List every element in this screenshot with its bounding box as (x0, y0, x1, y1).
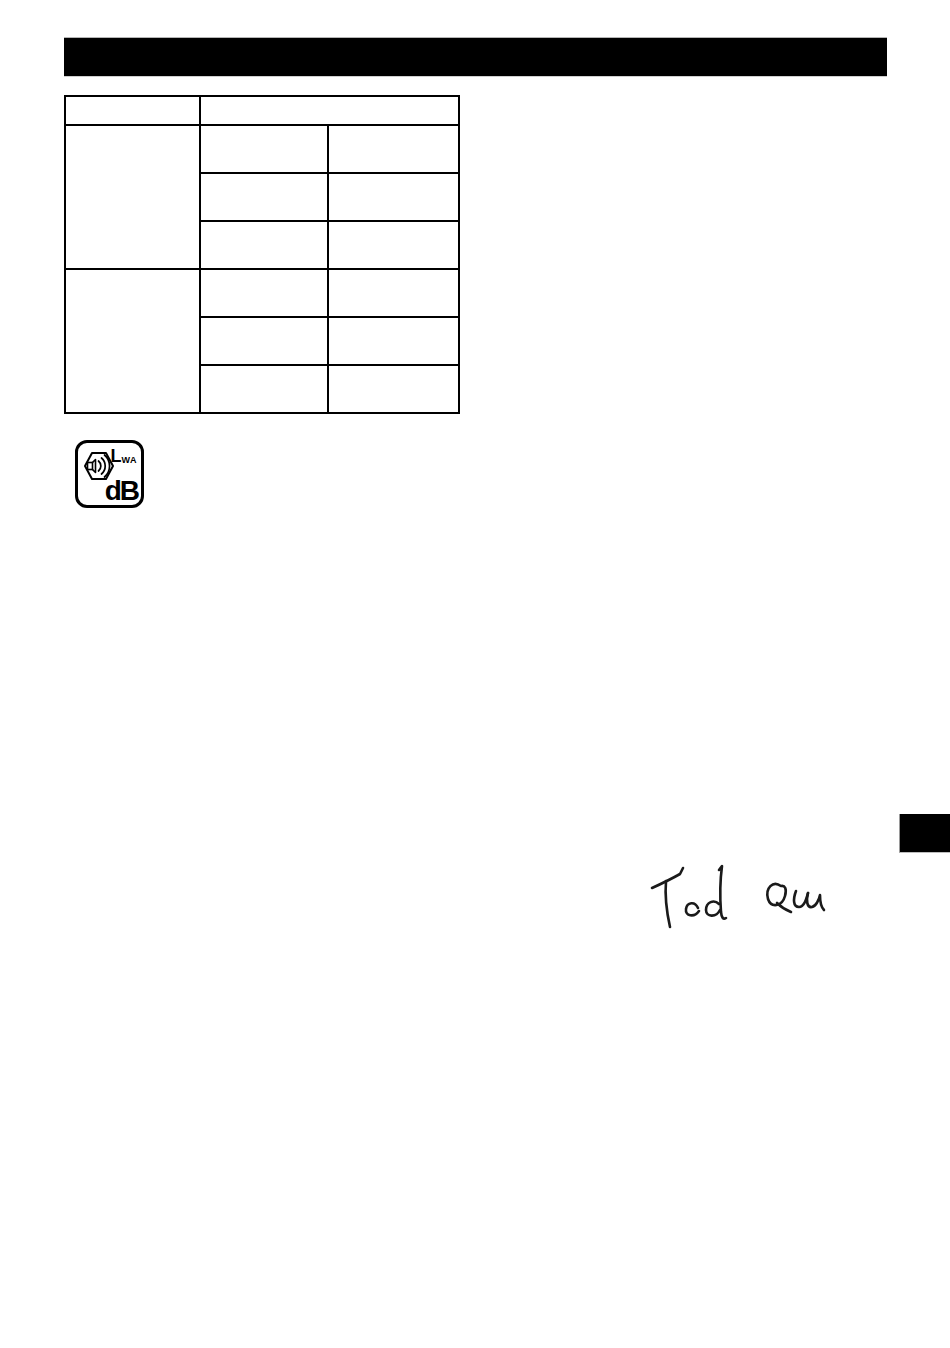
table-cell (328, 221, 459, 269)
spec-table (64, 95, 460, 414)
table-row (65, 125, 459, 173)
document-page: LWA dB (0, 0, 950, 1348)
table-cell (200, 173, 328, 221)
table-cell (200, 125, 328, 173)
table-cell (328, 317, 459, 365)
page-edge-black-tab (899, 814, 950, 853)
group1-label-cell (65, 125, 200, 269)
header-right-cell (200, 96, 459, 125)
header-left-cell (65, 96, 200, 125)
table-header-row (65, 96, 459, 125)
handwritten-signature (643, 857, 833, 937)
table-row (65, 269, 459, 317)
group2-label-cell (65, 269, 200, 413)
table-cell (200, 365, 328, 413)
table-cell (328, 173, 459, 221)
lwa-main-text: L (111, 446, 122, 466)
lwa-sub-text: WA (122, 455, 138, 465)
table-cell (200, 221, 328, 269)
table-cell (200, 269, 328, 317)
table-cell (328, 269, 459, 317)
db-label: dB (105, 477, 138, 505)
redacted-title-bar (64, 37, 887, 77)
sound-power-badge: LWA dB (75, 440, 144, 508)
table-cell (328, 365, 459, 413)
lwa-label: LWA (111, 447, 138, 465)
table-cell (328, 125, 459, 173)
table-cell (200, 317, 328, 365)
